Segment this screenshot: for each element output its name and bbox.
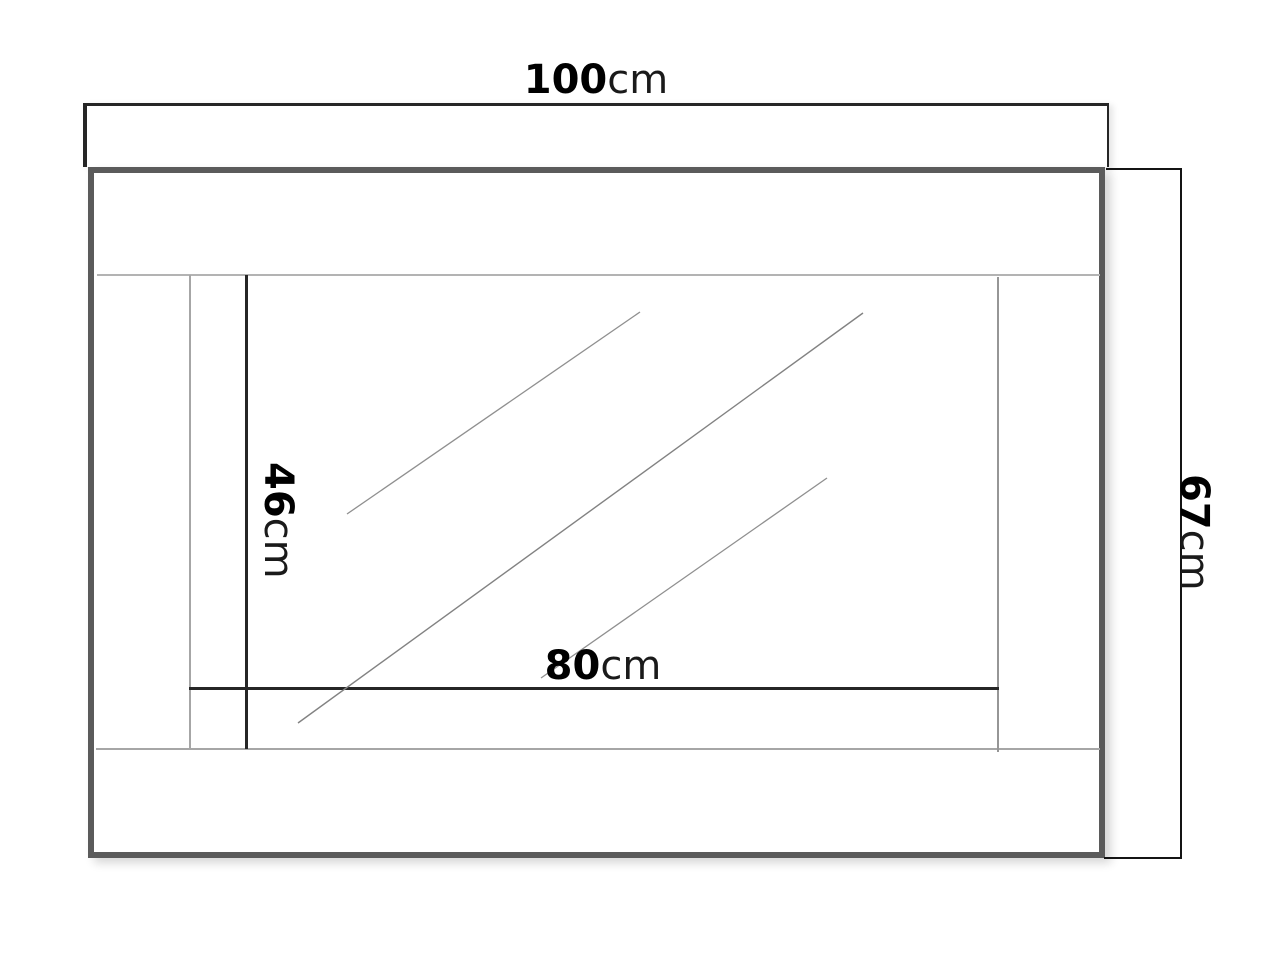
mirror-glass-left-edge xyxy=(189,275,191,749)
overall-height-label: 67cm xyxy=(1174,474,1214,591)
mirror-width-unit: cm xyxy=(600,643,661,689)
mirror-width-label: 80cm xyxy=(453,646,753,686)
overall-width-unit: cm xyxy=(607,57,668,103)
overall-height-unit: cm xyxy=(1171,530,1217,591)
mirror-height-dimension-line xyxy=(245,275,248,749)
height-bracket-top-connector xyxy=(1106,168,1182,170)
overall-height-value: 67 xyxy=(1171,474,1217,530)
mirror-glass-right-edge xyxy=(997,277,999,752)
mirror-height-label: 46cm xyxy=(258,462,298,579)
frame-body xyxy=(88,167,1105,858)
mirror-height-value: 46 xyxy=(255,462,301,518)
mirror-dimension-diagram: 100cm 80cm 46cm 67cm xyxy=(0,0,1288,966)
mirror-width-value: 80 xyxy=(545,643,601,689)
height-bracket-bottom-connector xyxy=(1104,857,1182,859)
mirror-height-unit: cm xyxy=(255,518,301,579)
top-shelf xyxy=(83,103,1109,167)
overall-width-value: 100 xyxy=(524,57,608,103)
overall-width-label: 100cm xyxy=(446,60,746,100)
